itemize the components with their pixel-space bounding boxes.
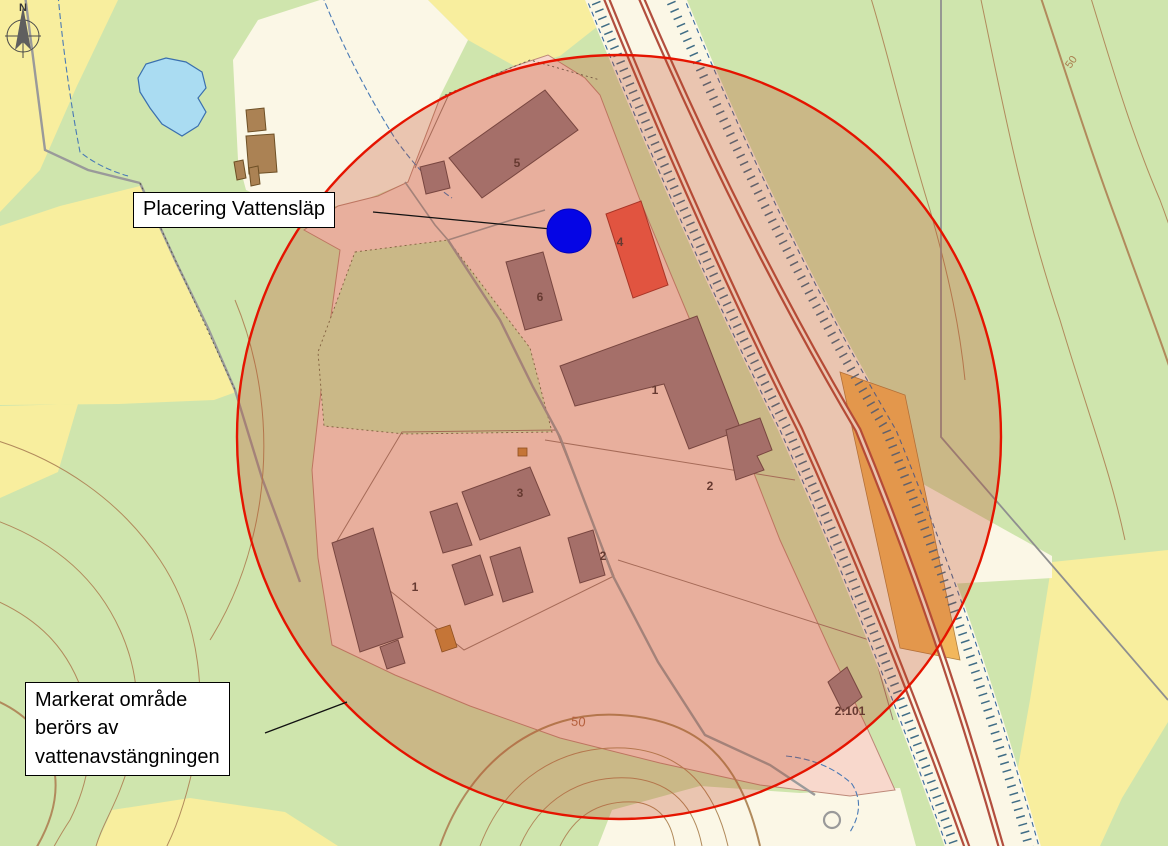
farm-building-4 — [249, 166, 260, 186]
callout-markerat-line-3: vattenavstängningen — [35, 743, 220, 771]
water-trailer-marker — [547, 209, 591, 253]
callout-markerat-line-2: berörs av — [35, 714, 220, 742]
cul-de-sac — [824, 812, 840, 828]
callout-markerat-omrade: Markerat område berörs av vattenavstängn… — [25, 682, 230, 776]
callout-placering-vattenslap: Placering Vattensläp — [133, 192, 335, 228]
callout-markerat-line-1: Markerat område — [35, 686, 220, 714]
water-shutdown-zone-circle — [237, 55, 1001, 819]
map-viewport: 5 4 6 1 2 3 2 1 2:101 50 50 N Placering … — [0, 0, 1168, 846]
farm-building-1 — [246, 108, 266, 132]
